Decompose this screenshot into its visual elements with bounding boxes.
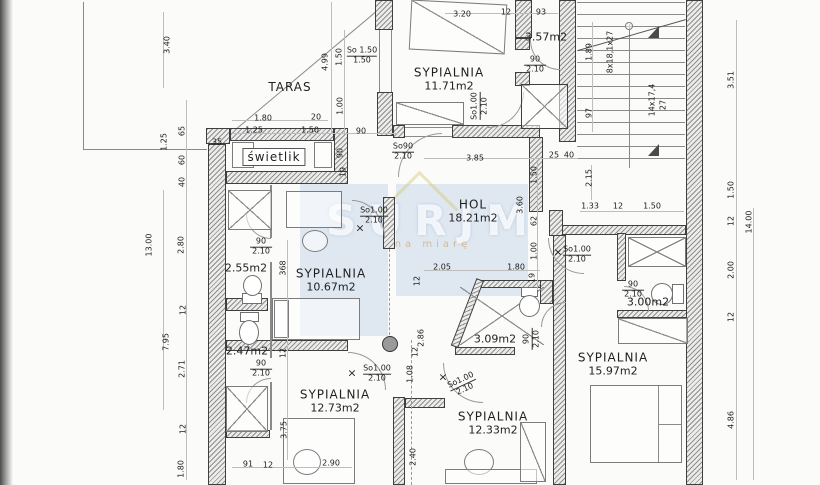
- dimension-label: 1.80: [254, 114, 272, 123]
- partition-line: [270, 340, 272, 358]
- door-width: So90: [393, 142, 413, 151]
- column: [382, 336, 398, 352]
- dimension-label: 4.99: [321, 53, 330, 71]
- door-arc: [541, 302, 566, 327]
- wall-segment: [377, 92, 393, 136]
- room-label: 2.47m2: [226, 345, 268, 358]
- dimension-label: 2.00: [727, 261, 736, 279]
- room-area: 3.57m2: [525, 31, 567, 44]
- door-height: 2.10: [622, 290, 644, 300]
- door-jamb: [405, 127, 452, 128]
- wall-segment: [375, 0, 393, 30]
- door-height: 2.10: [363, 374, 391, 384]
- door-label: 902.10: [250, 360, 272, 379]
- dimension-label: 3.40: [163, 36, 172, 54]
- dimension-label: 2.15: [585, 169, 594, 187]
- room-label: SYPIALNIA10.67m2: [296, 267, 366, 294]
- scanner-edge-artifact: [0, 0, 13, 485]
- room-name: TARAS: [268, 80, 311, 94]
- dimension-label: 1.50: [301, 126, 319, 135]
- room-name: SYPIALNIA: [414, 66, 484, 80]
- wardrobe: [628, 237, 686, 267]
- dimension-label: 12: [727, 312, 736, 322]
- dimension-label: 3.51: [727, 71, 736, 89]
- room-area: 15.97m2: [578, 365, 648, 378]
- dimension-label: 1.00: [336, 97, 345, 115]
- wall-segment: [553, 235, 566, 485]
- room-area: 2.47m2: [226, 345, 268, 358]
- room-label: SYPIALNIA15.97m2: [578, 351, 648, 378]
- dimension-label: 7.95: [162, 333, 171, 351]
- dimension-label: 19: [339, 167, 348, 177]
- dimension-label: 1.50: [335, 48, 344, 66]
- room-name: HOL: [448, 198, 497, 212]
- door-width: 90: [256, 237, 266, 246]
- door-height: 2.10: [480, 92, 490, 120]
- terrace-edge: [83, 149, 207, 150]
- room-label: 3.57m2: [525, 31, 567, 44]
- dimension-label: 3.75: [280, 421, 289, 439]
- room-area: 12.33m2: [458, 424, 528, 437]
- floor-plan: SURJM na miarę: [0, 0, 820, 485]
- stair-newel: [625, 22, 633, 30]
- terrace-edge: [83, 2, 84, 150]
- dimension-label: 1.89: [585, 43, 594, 61]
- dimension-label: 25: [549, 151, 559, 160]
- door-width: 90: [522, 334, 531, 344]
- dimension-label: 97: [585, 108, 594, 118]
- room-label: TARAS: [268, 80, 311, 94]
- room-label: 3.09m2: [474, 333, 516, 346]
- dimension-label: 65: [178, 126, 187, 136]
- door-arc: [488, 92, 524, 128]
- door-width: So1.00: [470, 92, 479, 120]
- door-width: So1.00: [360, 206, 388, 215]
- dresser: [396, 102, 464, 125]
- door-width: So 1.50: [347, 46, 377, 55]
- dimension-label: 3.85: [466, 154, 484, 163]
- dimension-label: 12: [411, 347, 420, 357]
- shaft-box: [521, 84, 568, 129]
- door-height: 2.10: [250, 369, 272, 379]
- dimension-label: 12: [613, 202, 623, 211]
- door-height: 2.10: [392, 152, 414, 162]
- door-width: 90: [628, 280, 638, 289]
- dimension-label: 1.33: [581, 202, 599, 211]
- dimension-label: 3.20: [453, 10, 471, 19]
- dimension-line: [736, 20, 737, 480]
- dimension-label: 1.80: [177, 460, 186, 478]
- door-x-mark: ×: [355, 222, 364, 235]
- wall-segment: [617, 233, 626, 281]
- door-height: 2.10: [563, 255, 591, 265]
- wardrobe: [226, 386, 268, 432]
- door-width: 90: [530, 55, 540, 64]
- dimension-label: 93: [536, 8, 546, 17]
- dimension-label: 12: [501, 8, 511, 17]
- room-label: 2.55m2: [225, 262, 267, 275]
- room-area: 12.73m2: [300, 402, 370, 415]
- room-label: HOL18.21m2: [448, 198, 497, 225]
- door-label: 902.10: [622, 281, 644, 300]
- room-label: SYPIALNIA12.33m2: [458, 410, 528, 437]
- dimension-label: 90: [356, 127, 366, 136]
- door-x-mark: ×: [553, 246, 562, 259]
- dimension-label: 12: [179, 305, 188, 315]
- dimension-label: 2.90: [322, 459, 340, 468]
- dimension-label: 2.86: [417, 329, 426, 347]
- dimension-label: 1.50: [727, 181, 736, 199]
- door-height: 2.10: [250, 247, 272, 257]
- room-label: świetlik: [242, 148, 305, 166]
- chair: [293, 449, 321, 475]
- dimension-label: 1.25: [245, 126, 263, 135]
- door-x-mark: ×: [438, 371, 447, 384]
- dimension-label: 12: [279, 348, 288, 358]
- dimension-label: 1.00: [530, 242, 539, 260]
- dimension-label: 12: [413, 276, 422, 286]
- dimension-label: 14.00: [745, 211, 754, 234]
- room-label: SYPIALNIA11.71m2: [414, 66, 484, 93]
- door-width: 90: [256, 359, 266, 368]
- wall-segment: [617, 310, 687, 318]
- door-label: So902.10: [392, 143, 414, 162]
- stair-label: 8x18,1x27: [606, 31, 615, 74]
- door-height: 2.10: [532, 328, 542, 350]
- bed-blanket-line: [659, 424, 681, 425]
- dimension-label: 12: [263, 461, 273, 470]
- room-name: SYPIALNIA: [300, 388, 370, 402]
- door-width: So1.00: [563, 245, 591, 254]
- cabinet: [618, 318, 688, 344]
- door-label: 902.10: [250, 238, 272, 257]
- door-label: So1.002.10: [563, 246, 591, 265]
- wall-segment: [549, 210, 563, 236]
- wardrobe: [228, 190, 272, 230]
- dimension-label: 91: [243, 460, 253, 469]
- dimension-label: 90: [336, 148, 345, 158]
- hidden-line: [389, 249, 390, 340]
- dimension-label: 1.25: [160, 133, 169, 151]
- room-name: SYPIALNIA: [458, 410, 528, 424]
- dimension-label: 368: [279, 260, 288, 275]
- dimension-label: 40: [564, 151, 574, 160]
- wall-segment: [455, 347, 515, 355]
- dimension-label: 2.40: [409, 448, 418, 466]
- dimension-label: 62: [530, 216, 539, 226]
- room-name: SYPIALNIA: [578, 351, 648, 365]
- bed: [409, 0, 507, 54]
- dimension-label: 19: [528, 273, 537, 283]
- room-label: SYPIALNIA12.73m2: [300, 388, 370, 415]
- dimension-line: [580, 211, 684, 212]
- room-name: SYPIALNIA: [296, 267, 366, 281]
- dimension-line: [331, 2, 332, 133]
- dimension-label: 2.80: [177, 236, 186, 254]
- stair-rail: [629, 24, 630, 168]
- wall-segment: [208, 144, 226, 485]
- dimension-label: 1.50: [643, 202, 661, 211]
- door-label: 902.10: [524, 56, 546, 75]
- door-height: 1.50: [347, 56, 377, 66]
- room-area: 10.67m2: [296, 281, 366, 294]
- dimension-label: 1.80: [507, 263, 525, 272]
- dimension-label: 1.08: [406, 365, 415, 383]
- dimension-label: 12: [179, 424, 188, 434]
- door-x-mark: ×: [347, 367, 356, 380]
- door-label: So 1.501.50: [347, 47, 377, 66]
- dimension-line: [163, 190, 164, 410]
- dimension-label: 2.71: [178, 360, 187, 378]
- dimension-label: 40: [178, 177, 187, 187]
- wall-segment: [226, 171, 348, 184]
- door-label: So1.002.10: [363, 365, 391, 384]
- dimension-label: 35: [212, 138, 222, 147]
- dimension-label: 13.00: [145, 234, 154, 257]
- door-jamb: [391, 30, 392, 92]
- stair-arrow: [648, 26, 659, 38]
- dimension-label: 20: [311, 113, 321, 122]
- door-jamb: [379, 30, 380, 92]
- wall-segment: [686, 0, 703, 485]
- wall-segment: [393, 397, 405, 485]
- room-area: 3.09m2: [474, 333, 516, 346]
- dimension-label: 1.50: [530, 166, 539, 184]
- dimension-label: 4.86: [727, 411, 736, 429]
- bed: [283, 418, 355, 484]
- dimension-label: 12: [727, 216, 736, 226]
- room-area: 18.21m2: [448, 212, 497, 225]
- room-area: 2.55m2: [225, 262, 267, 275]
- dimension-line: [344, 30, 345, 133]
- door-width: So1.00: [363, 364, 391, 373]
- dimension-label: 3.60: [516, 196, 525, 214]
- room-area: 11.71m2: [414, 80, 484, 93]
- door-label: 902.10: [523, 328, 542, 350]
- stair-label: 27: [659, 100, 668, 110]
- skylight-box: [314, 142, 332, 168]
- door-height: 2.10: [524, 65, 546, 75]
- stair-label: 14x17,4: [648, 84, 657, 117]
- door-label: So1.002.10: [471, 92, 490, 120]
- desk: [286, 191, 342, 228]
- stair-arrow: [648, 144, 659, 156]
- chair: [302, 230, 328, 252]
- dimension-line: [753, 208, 754, 480]
- dimension-label: 60: [178, 155, 187, 165]
- wall-segment: [393, 125, 405, 138]
- room-name: świetlik: [247, 150, 300, 164]
- dimension-label: 2.05: [433, 263, 451, 272]
